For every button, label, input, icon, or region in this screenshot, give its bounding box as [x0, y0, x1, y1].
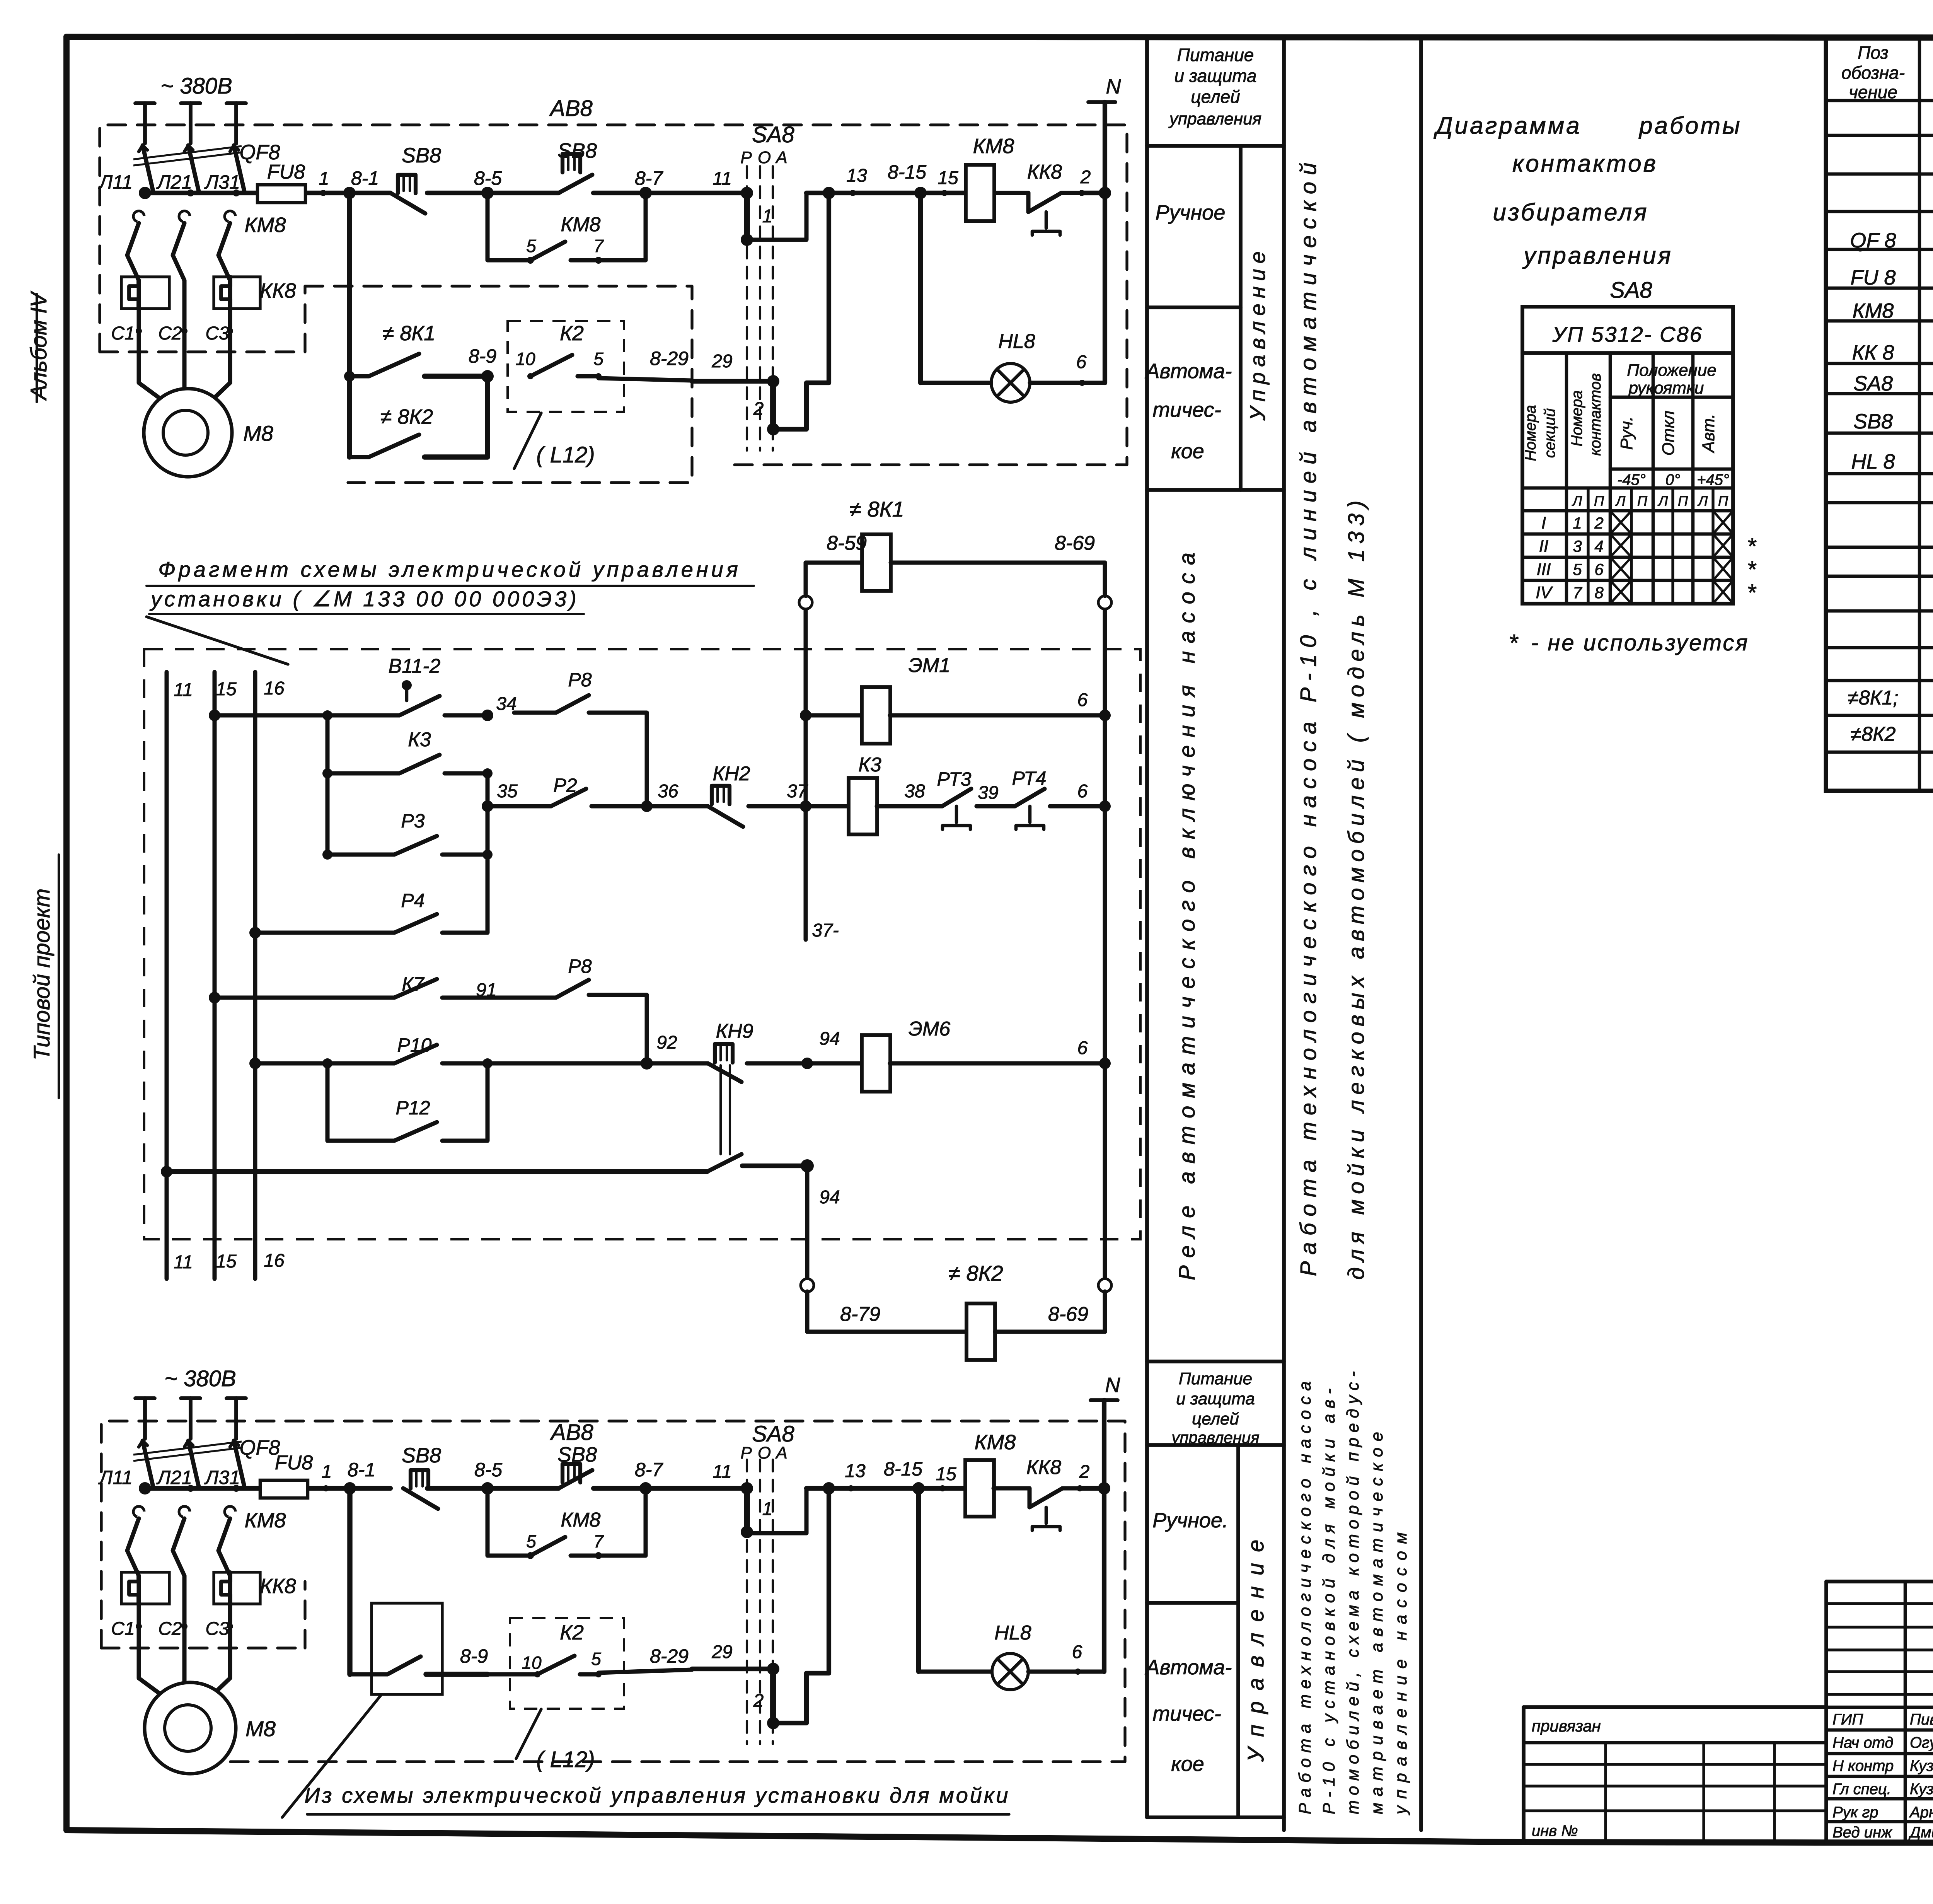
- svg-text:N: N: [1105, 1373, 1121, 1397]
- svg-text:тичес-: тичес-: [1152, 1702, 1221, 1725]
- svg-text:КМ8: КМ8: [561, 213, 601, 236]
- svg-text:КК8: КК8: [1026, 1456, 1061, 1479]
- svg-text:IV: IV: [1536, 583, 1553, 602]
- svg-text:С2: С2: [158, 1619, 182, 1639]
- svg-text:Н контр: Н контр: [1832, 1757, 1894, 1774]
- svg-text:КМ8: КМ8: [245, 213, 286, 237]
- svg-text:С1: С1: [111, 1619, 135, 1639]
- svg-text:1: 1: [1573, 514, 1582, 532]
- svg-text:П: П: [1678, 493, 1688, 509]
- svg-text:11: 11: [713, 1462, 732, 1482]
- svg-text:Поз: Поз: [1858, 43, 1889, 63]
- svg-text:I: I: [1541, 514, 1546, 532]
- svg-text:целей: целей: [1192, 1409, 1239, 1428]
- svg-text:8-9: 8-9: [469, 345, 496, 367]
- svg-text:целей: целей: [1191, 87, 1240, 107]
- svg-text:Питание: Питание: [1177, 45, 1254, 65]
- svg-text:чение: чение: [1849, 82, 1897, 102]
- svg-text:1: 1: [322, 1462, 332, 1482]
- svg-text:11: 11: [174, 680, 193, 700]
- svg-text:8-5: 8-5: [474, 1459, 502, 1481]
- svg-text:Р: Р: [740, 1443, 752, 1462]
- svg-text:Л: Л: [1615, 493, 1626, 509]
- svg-text:≠ 8К1: ≠ 8К1: [383, 322, 436, 345]
- svg-text:П: П: [1718, 493, 1728, 509]
- svg-text:*: *: [1747, 533, 1756, 559]
- svg-text:-45°: -45°: [1617, 471, 1646, 488]
- svg-text:16: 16: [264, 1251, 285, 1271]
- svg-text:16: 16: [264, 678, 285, 699]
- svg-text:8-9: 8-9: [460, 1645, 488, 1667]
- svg-text:5: 5: [1573, 560, 1582, 578]
- svg-text:7: 7: [593, 1531, 604, 1551]
- svg-text:4: 4: [1594, 537, 1603, 555]
- svg-text:10: 10: [515, 349, 535, 369]
- svg-text:Пивторак: Пивторак: [1910, 1711, 1933, 1728]
- svg-text:5: 5: [593, 349, 603, 369]
- svg-text:2: 2: [1594, 514, 1603, 532]
- svg-text:кое: кое: [1171, 440, 1204, 463]
- svg-text:1: 1: [762, 206, 773, 227]
- svg-text:SB8: SB8: [557, 139, 597, 162]
- svg-text:КК8: КК8: [260, 1575, 296, 1598]
- svg-text:Р: Р: [740, 148, 752, 167]
- svg-text:Л11: Л11: [98, 171, 133, 193]
- svg-text:А: А: [775, 1443, 787, 1462]
- svg-text:К7: К7: [402, 973, 424, 995]
- svg-text:8-29: 8-29: [650, 1645, 689, 1667]
- svg-text:тичес-: тичес-: [1152, 398, 1221, 421]
- svg-text:8-7: 8-7: [635, 1459, 663, 1481]
- svg-text:FU 8: FU 8: [1850, 266, 1895, 289]
- svg-text:Р8: Р8: [568, 955, 591, 977]
- svg-text:Л31: Л31: [204, 1467, 240, 1488]
- svg-text:7: 7: [1573, 583, 1582, 602]
- svg-text:КК 8: КК 8: [1852, 341, 1894, 364]
- svg-text:Р8: Р8: [568, 669, 591, 691]
- svg-text:Автома-: Автома-: [1144, 1656, 1232, 1679]
- svg-text:управления: управления: [1522, 242, 1673, 269]
- svg-text:Л: Л: [1658, 493, 1668, 509]
- svg-text:и защита: и защита: [1176, 1389, 1255, 1408]
- svg-text:7: 7: [593, 236, 604, 256]
- svg-text:2: 2: [1080, 167, 1091, 188]
- svg-text:SB8: SB8: [402, 144, 441, 167]
- svg-text:35: 35: [497, 781, 518, 802]
- svg-text:К3: К3: [858, 754, 881, 776]
- svg-text:КН2: КН2: [713, 763, 750, 785]
- svg-text:2: 2: [753, 1691, 764, 1711]
- svg-text:Арнаутова: Арнаутова: [1909, 1804, 1933, 1821]
- svg-text:А: А: [775, 148, 787, 167]
- svg-text:6: 6: [1072, 1642, 1082, 1662]
- svg-text:контактов: контактов: [1587, 373, 1604, 456]
- svg-text:13: 13: [846, 165, 867, 186]
- svg-text:С3: С3: [205, 323, 229, 344]
- svg-text:Ручное: Ручное: [1156, 201, 1226, 224]
- svg-text:8: 8: [1594, 583, 1604, 602]
- svg-text:М8: М8: [243, 421, 273, 445]
- svg-text:15: 15: [938, 168, 958, 188]
- svg-text:рукоятки: рукоятки: [1628, 379, 1704, 398]
- svg-text:1: 1: [319, 169, 329, 189]
- svg-text:Номера: Номера: [1522, 405, 1539, 461]
- svg-text:Положение: Положение: [1627, 361, 1717, 380]
- svg-text:FU8: FU8: [275, 1452, 313, 1474]
- svg-text:SB8: SB8: [1853, 410, 1893, 433]
- svg-text:8-7: 8-7: [635, 167, 663, 189]
- svg-text:В11-2: В11-2: [389, 655, 441, 677]
- svg-text:Л21: Л21: [156, 1467, 192, 1488]
- svg-text:~ 380В: ~ 380В: [164, 1366, 236, 1391]
- svg-text:Р12: Р12: [396, 1097, 430, 1119]
- svg-text:8-1: 8-1: [348, 1459, 375, 1481]
- svg-text:38: 38: [904, 781, 925, 802]
- svg-text:Управление: Управление: [1243, 1529, 1268, 1762]
- svg-text:8-79: 8-79: [840, 1303, 880, 1326]
- svg-text:8-69: 8-69: [1048, 1303, 1088, 1326]
- svg-text:Кузнецов: Кузнецов: [1910, 1757, 1933, 1774]
- svg-text:Р2: Р2: [553, 775, 577, 796]
- svg-text:6: 6: [1077, 690, 1088, 710]
- svg-text:≠ 8К2: ≠ 8К2: [948, 1261, 1003, 1285]
- svg-text:Работа технологического насос: Работа технологического насоса: [1295, 1376, 1314, 1814]
- svg-text:Фрагмент схемы электрической: Фрагмент схемы электрической управления: [158, 557, 741, 582]
- svg-text:QF8: QF8: [239, 141, 280, 164]
- svg-text:- не используется: - не используется: [1531, 630, 1749, 655]
- svg-text:П: П: [1594, 493, 1604, 509]
- svg-text:Огурцов: Огурцов: [1910, 1734, 1933, 1751]
- svg-text:матривает автоматическое: матривает автоматическое: [1367, 1426, 1386, 1814]
- svg-text:Л31: Л31: [204, 171, 240, 193]
- svg-text:Р4: Р4: [401, 890, 424, 911]
- svg-text:*: *: [1747, 580, 1756, 606]
- svg-text:6: 6: [1076, 352, 1087, 372]
- svg-text:секций: секций: [1541, 408, 1558, 458]
- svg-text:3: 3: [1573, 537, 1582, 555]
- svg-text:FU8: FU8: [267, 161, 305, 183]
- svg-text:Автома-: Автома-: [1144, 360, 1232, 383]
- svg-text:15: 15: [216, 679, 237, 699]
- svg-text:С1: С1: [111, 323, 135, 344]
- svg-text:( L12): ( L12): [536, 442, 595, 467]
- svg-text:управление насосом: управление насосом: [1391, 1525, 1410, 1815]
- svg-text:контактов: контактов: [1512, 150, 1658, 177]
- svg-text:О: О: [758, 1443, 771, 1462]
- svg-text:Р3: Р3: [401, 810, 424, 832]
- svg-text:94: 94: [819, 1187, 840, 1208]
- svg-text:обозна-: обозна-: [1841, 63, 1905, 83]
- svg-text:Реле автоматического включен: Реле автоматического включения насоса: [1174, 545, 1200, 1280]
- svg-text:Л21: Л21: [156, 171, 192, 193]
- svg-text:избирателя: избирателя: [1493, 199, 1648, 226]
- svg-text:1: 1: [762, 1499, 773, 1519]
- svg-text:8-15: 8-15: [884, 1458, 922, 1480]
- svg-text:Дмитриева: Дмитриева: [1908, 1824, 1933, 1841]
- svg-text:2: 2: [1079, 1462, 1090, 1482]
- svg-text:8-59: 8-59: [827, 532, 867, 554]
- svg-text:КМ8: КМ8: [561, 1509, 601, 1531]
- svg-text:томобилей, схема которой преду: томобилей, схема которой предус-: [1343, 1366, 1362, 1814]
- svg-text:*: *: [1747, 556, 1756, 582]
- svg-text:36: 36: [658, 781, 678, 802]
- svg-text:6: 6: [1594, 560, 1604, 578]
- svg-text:SB8: SB8: [557, 1443, 597, 1466]
- svg-text:SA8: SA8: [752, 122, 794, 147]
- svg-text:Откл: Откл: [1659, 411, 1678, 456]
- svg-text:КМ8: КМ8: [973, 135, 1014, 158]
- svg-text:Работа технологического нас: Работа технологического насоса Р-10 , с …: [1296, 156, 1321, 1276]
- svg-text:Альбом IV: Альбом IV: [26, 290, 51, 401]
- svg-text:( L12): ( L12): [536, 1747, 595, 1772]
- svg-text:РТ3: РТ3: [937, 768, 972, 790]
- svg-text:Ручное.: Ручное.: [1152, 1509, 1228, 1532]
- svg-text:Рук гр: Рук гр: [1832, 1804, 1878, 1821]
- svg-text:Диаграмма: Диаграмма: [1434, 113, 1582, 139]
- svg-text:5: 5: [591, 1649, 601, 1669]
- svg-text:и защита: и защита: [1174, 66, 1257, 86]
- svg-text:К2: К2: [560, 1621, 584, 1644]
- svg-text:привязан: привязан: [1532, 1717, 1601, 1735]
- svg-text:SA8: SA8: [1853, 372, 1893, 395]
- svg-text:П: П: [1637, 493, 1648, 509]
- svg-text:АВ8: АВ8: [550, 1420, 593, 1445]
- svg-text:SA8: SA8: [752, 1421, 794, 1447]
- svg-text:37-: 37-: [812, 920, 839, 941]
- svg-text:КМ8: КМ8: [1853, 299, 1894, 322]
- svg-text:8-15: 8-15: [888, 161, 926, 183]
- svg-text:Л: Л: [1698, 493, 1708, 509]
- svg-text:НL8: НL8: [994, 1622, 1031, 1644]
- svg-text:КН9: КН9: [716, 1020, 753, 1042]
- svg-text:КМ8: КМ8: [975, 1431, 1016, 1454]
- svg-text:Кузнецов: Кузнецов: [1910, 1781, 1933, 1798]
- svg-text:Р10: Р10: [397, 1034, 432, 1056]
- svg-text:6: 6: [1077, 781, 1088, 802]
- svg-text:работы: работы: [1638, 113, 1742, 139]
- svg-text:SA8: SA8: [1610, 278, 1652, 303]
- svg-text:ЭМ6: ЭМ6: [909, 1018, 950, 1040]
- svg-text:Номера: Номера: [1568, 390, 1585, 446]
- svg-text:29: 29: [711, 351, 732, 372]
- svg-text:КМ8: КМ8: [245, 1509, 286, 1532]
- svg-text:КК8: КК8: [260, 279, 296, 302]
- svg-text:6: 6: [1077, 1038, 1088, 1058]
- svg-text:≠8К1;: ≠8К1;: [1848, 687, 1898, 709]
- svg-text:М8: М8: [245, 1716, 276, 1741]
- svg-text:15: 15: [216, 1251, 237, 1272]
- svg-text:0°: 0°: [1665, 471, 1680, 488]
- svg-text:~ 380В: ~ 380В: [160, 73, 232, 99]
- svg-text:8-69: 8-69: [1055, 532, 1095, 554]
- svg-text:Л11: Л11: [98, 1467, 133, 1488]
- svg-text:Вед инж: Вед инж: [1832, 1824, 1892, 1841]
- svg-text:8-5: 8-5: [474, 167, 502, 189]
- svg-text:О: О: [758, 148, 771, 167]
- svg-text:Управление: Управление: [1245, 246, 1270, 421]
- svg-text:QF8: QF8: [239, 1436, 280, 1459]
- svg-text:К3: К3: [408, 729, 431, 751]
- svg-text:92: 92: [656, 1032, 677, 1053]
- svg-text:III: III: [1537, 560, 1551, 579]
- svg-text:НL8: НL8: [998, 330, 1035, 353]
- svg-text:Р-10 с установкой для мойки ав: Р-10 с установкой для мойки ав-: [1319, 1383, 1338, 1814]
- svg-text:РТ4: РТ4: [1012, 768, 1047, 789]
- svg-text:≠ 8К2: ≠ 8К2: [380, 405, 433, 428]
- svg-text:Руч.: Руч.: [1617, 416, 1636, 450]
- svg-text:15: 15: [936, 1464, 956, 1484]
- svg-text:Из схемы электрической упра: Из схемы электрической управления устано…: [304, 1783, 1010, 1807]
- svg-text:К2: К2: [560, 322, 584, 345]
- svg-text:QF 8: QF 8: [1850, 229, 1896, 252]
- svg-text:13: 13: [845, 1461, 866, 1481]
- svg-text:управления: управления: [1170, 1428, 1259, 1447]
- svg-text:29: 29: [711, 1642, 732, 1662]
- svg-text:*: *: [1509, 630, 1519, 657]
- svg-text:АВ8: АВ8: [549, 96, 593, 121]
- svg-text:ЭМ1: ЭМ1: [909, 654, 950, 677]
- svg-text:Гл спец.: Гл спец.: [1832, 1781, 1891, 1798]
- svg-text:N: N: [1106, 75, 1122, 98]
- svg-text:8-1: 8-1: [351, 167, 379, 189]
- svg-text:≠ 8К1: ≠ 8К1: [849, 497, 904, 521]
- svg-text:11: 11: [174, 1252, 193, 1273]
- svg-text:Нач отд: Нач отд: [1832, 1734, 1894, 1751]
- svg-text:НL 8: НL 8: [1851, 450, 1895, 473]
- svg-text:С2: С2: [158, 323, 182, 344]
- svg-text:+45°: +45°: [1697, 471, 1729, 488]
- svg-text:КК8: КК8: [1027, 161, 1062, 183]
- svg-text:С3: С3: [205, 1619, 229, 1639]
- svg-text:2: 2: [753, 399, 764, 419]
- svg-text:8-29: 8-29: [650, 348, 689, 369]
- svg-text:Питание: Питание: [1179, 1369, 1252, 1388]
- svg-text:SB8: SB8: [402, 1444, 441, 1467]
- svg-text:11: 11: [713, 169, 732, 189]
- svg-text:5: 5: [526, 1531, 536, 1551]
- svg-text:ГИП: ГИП: [1832, 1711, 1863, 1728]
- svg-text:10: 10: [522, 1653, 542, 1673]
- svg-text:установки ( ∠М 133 00 00 000Э3: установки ( ∠М 133 00 00 000Э3): [149, 587, 579, 611]
- svg-text:94: 94: [819, 1029, 840, 1049]
- svg-text:кое: кое: [1171, 1752, 1204, 1776]
- svg-text:≠8К2: ≠8К2: [1850, 723, 1895, 746]
- svg-text:УП 5312- С86: УП 5312- С86: [1552, 322, 1703, 346]
- svg-text:Авт.: Авт.: [1699, 414, 1718, 454]
- svg-text:для мойки легковых автомо: для мойки легковых автомобилей ( модель …: [1344, 495, 1369, 1280]
- svg-text:39: 39: [978, 783, 998, 803]
- svg-text:Л: Л: [1572, 493, 1582, 509]
- svg-text:5: 5: [526, 236, 536, 256]
- svg-text:II: II: [1539, 537, 1548, 556]
- svg-text:инв №: инв №: [1532, 1822, 1578, 1839]
- svg-text:управления: управления: [1168, 109, 1261, 128]
- svg-text:Типовой проект: Типовой проект: [29, 889, 55, 1061]
